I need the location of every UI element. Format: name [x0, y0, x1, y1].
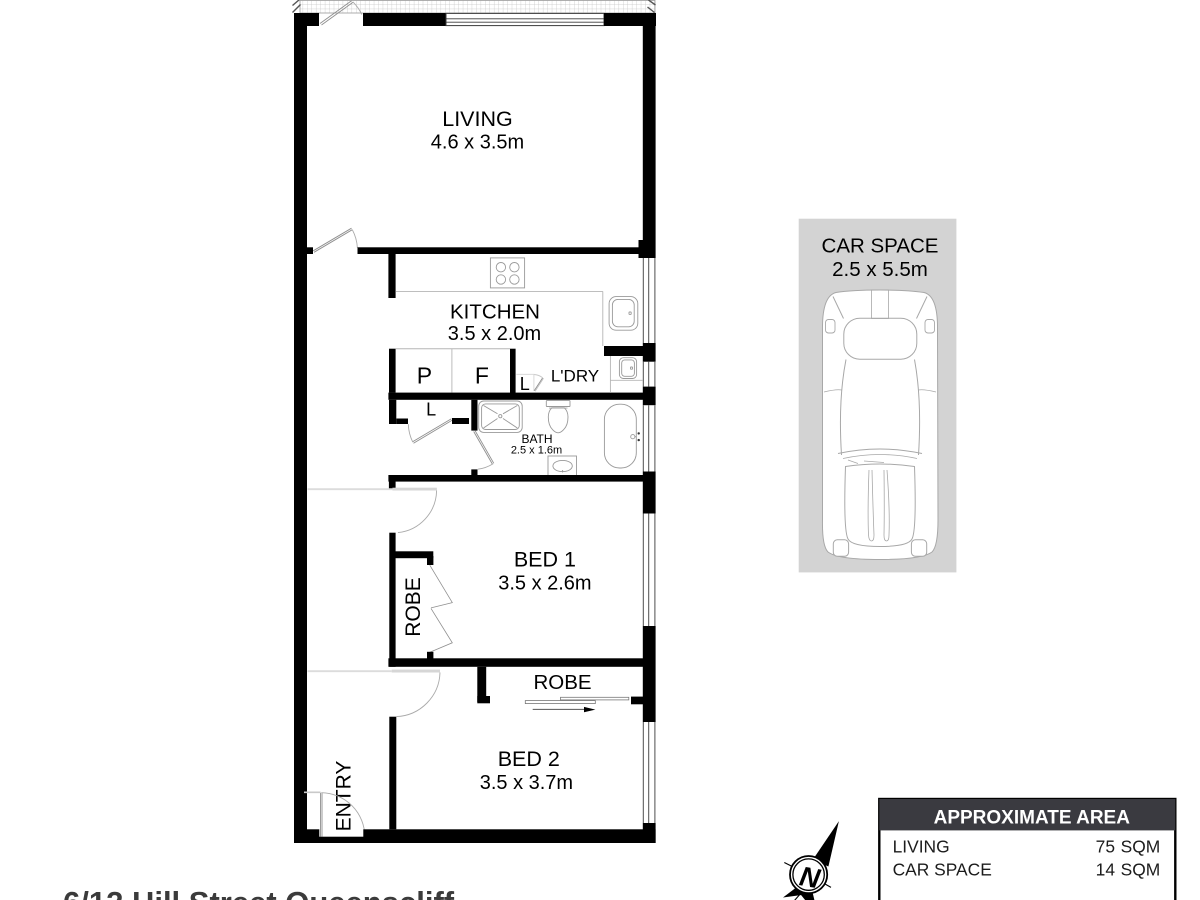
svg-text:ROBE: ROBE	[402, 577, 425, 637]
svg-text:L: L	[426, 400, 436, 420]
svg-text:CAR SPACE: CAR SPACE	[893, 860, 992, 880]
svg-text:SQM: SQM	[1121, 860, 1161, 880]
svg-text:ENTRY: ENTRY	[333, 761, 356, 832]
svg-text:BED 1: BED 1	[514, 548, 576, 572]
svg-text:14: 14	[1096, 860, 1116, 880]
svg-text:SQM: SQM	[1121, 837, 1161, 857]
svg-text:L'DRY: L'DRY	[551, 367, 599, 386]
svg-text:APPROXIMATE AREA: APPROXIMATE AREA	[934, 808, 1131, 829]
svg-text:LIVING: LIVING	[893, 837, 950, 857]
svg-text:2.5 x 5.5m: 2.5 x 5.5m	[832, 258, 928, 281]
svg-text:L: L	[520, 374, 530, 394]
svg-text:BED 2: BED 2	[498, 747, 560, 771]
svg-text:3.5 x 3.7m: 3.5 x 3.7m	[480, 772, 573, 794]
svg-text:P: P	[417, 363, 432, 389]
svg-text:3.5 x 2.6m: 3.5 x 2.6m	[498, 573, 591, 595]
svg-text:ROBE: ROBE	[533, 671, 591, 694]
svg-text:6/12 Hill Street Queenscliff: 6/12 Hill Street Queenscliff	[63, 885, 455, 900]
svg-text:CAR SPACE: CAR SPACE	[822, 234, 939, 257]
svg-text:F: F	[475, 363, 489, 389]
svg-text:4.6 x 3.5m: 4.6 x 3.5m	[431, 132, 524, 154]
svg-text:3.5 x 2.0m: 3.5 x 2.0m	[448, 323, 541, 345]
svg-text:75: 75	[1096, 837, 1115, 857]
svg-text:LIVING: LIVING	[442, 107, 513, 131]
svg-text:KITCHEN: KITCHEN	[450, 301, 540, 324]
svg-text:2.5 x 1.6m: 2.5 x 1.6m	[511, 445, 562, 457]
